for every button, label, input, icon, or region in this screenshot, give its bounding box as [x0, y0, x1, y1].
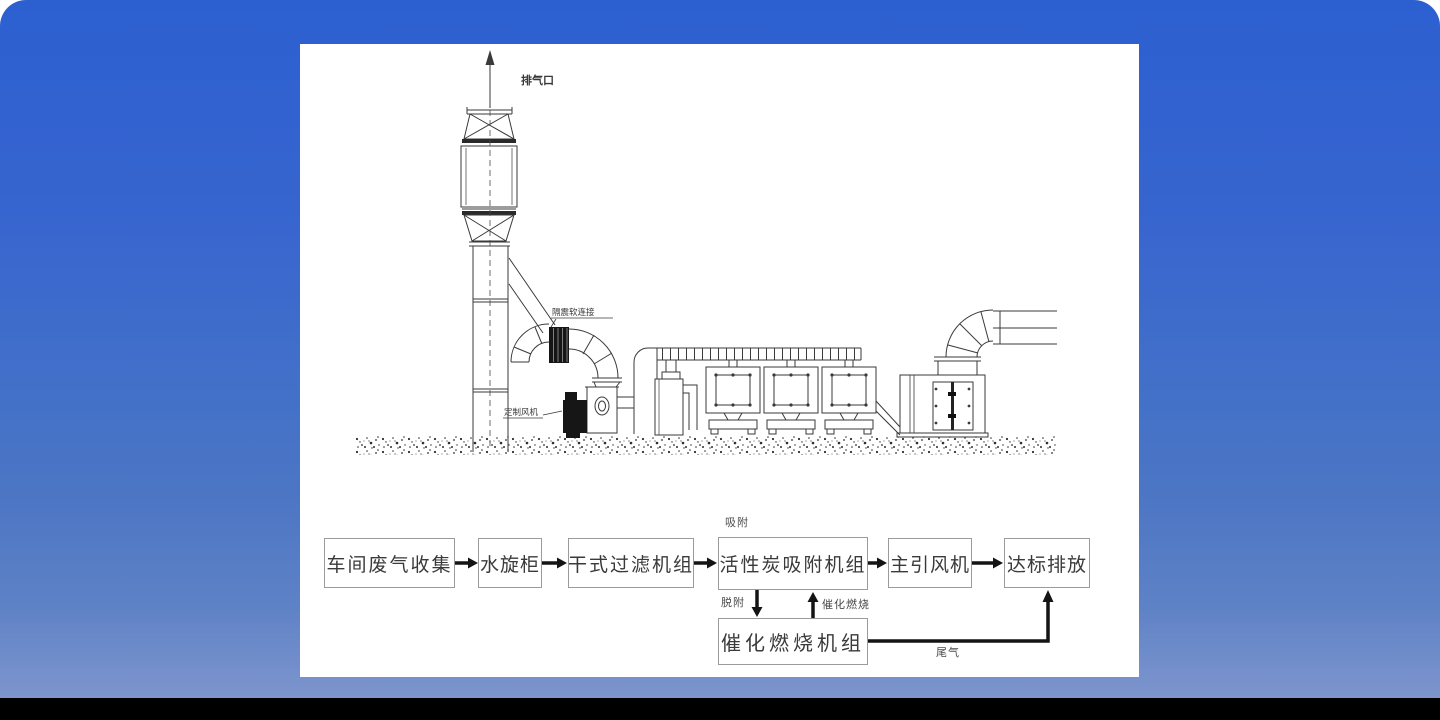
flow-box-label: 车间废气收集 — [326, 550, 452, 577]
exhaust-stack: 排气口 — [461, 50, 554, 452]
annotation-desorption: 脱附 — [721, 594, 745, 610]
adsorption-box — [706, 360, 760, 434]
flexible-connector-label: 隔震软连接 — [552, 307, 595, 317]
flow-box-main-induced-draft-fan: 主引风机 — [888, 538, 972, 588]
flow-box-activated-carbon-adsorption-unit: 活性炭吸附机组 — [718, 537, 868, 590]
flow-box-label: 水旋柜 — [480, 550, 540, 577]
flow-box-label: 主引风机 — [890, 550, 970, 577]
ground-stipple — [355, 436, 1057, 455]
annotation-tail-gas: 尾气 — [936, 644, 960, 660]
flow-box-label: 催化燃烧机组 — [721, 627, 865, 656]
adsorption-box — [764, 360, 818, 434]
filter-tank — [655, 360, 697, 435]
flow-box-label: 活性炭吸附机组 — [719, 550, 866, 577]
adsorption-unit-boxes — [706, 360, 876, 434]
flow-box-catalytic-combustion-unit: 催化燃烧机组 — [718, 618, 868, 665]
adsorption-box — [822, 360, 876, 434]
flow-box-workshop-waste-gas-collection: 车间废气收集 — [324, 538, 455, 588]
custom-fan-label: 定制风机 — [504, 407, 539, 417]
custom-fan-unit: 定制风机 — [503, 387, 634, 438]
flexible-duct-connector: 隔震软连接 — [509, 258, 622, 387]
annotation-catalytic-combustion: 催化燃烧 — [822, 596, 870, 612]
flow-box-compliant-discharge: 达标排放 — [1004, 538, 1090, 588]
diagram-panel: 排气口 隔震软连接 — [300, 44, 1139, 677]
flow-box-label: 干式过滤机组 — [568, 550, 694, 577]
catalytic-unit-equipment — [876, 310, 1057, 437]
flow-box-label: 达标排放 — [1007, 550, 1087, 577]
bottom-letterbox — [0, 698, 1440, 720]
exhaust-outlet-label: 排气口 — [521, 73, 554, 87]
flow-box-water-spray-cabinet: 水旋柜 — [478, 538, 542, 588]
annotation-adsorption: 吸附 — [725, 514, 749, 530]
flow-box-dry-filter-unit: 干式过滤机组 — [568, 538, 694, 588]
